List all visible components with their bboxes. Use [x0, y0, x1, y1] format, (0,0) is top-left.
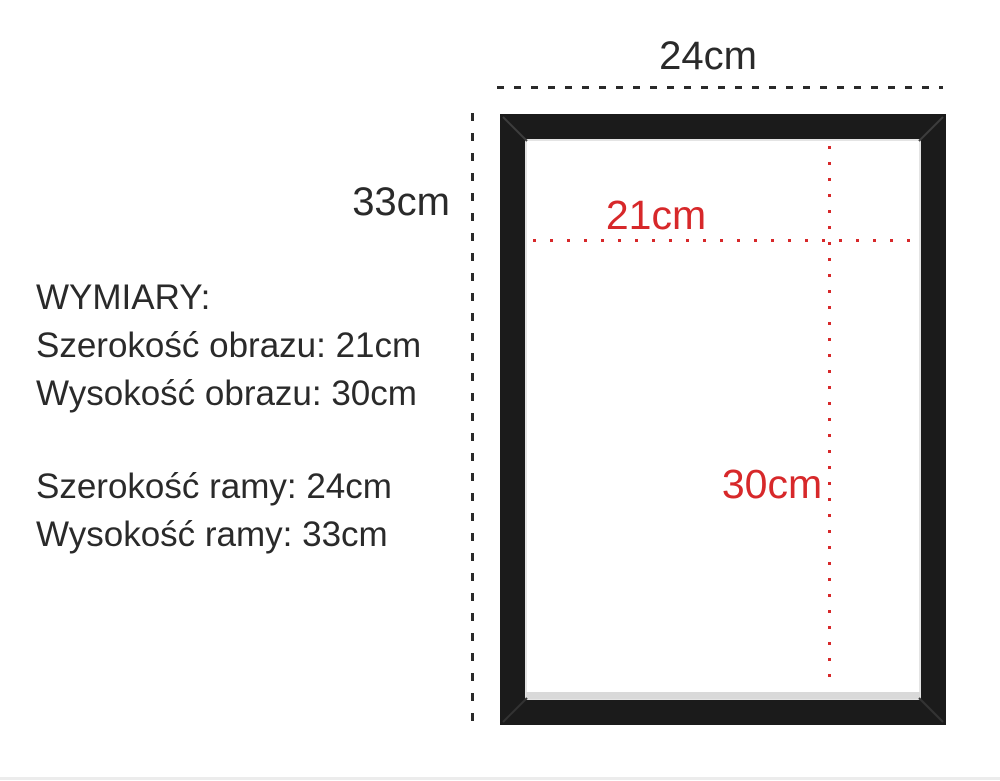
picture-area	[526, 140, 920, 699]
picture-height-label: 30cm	[719, 461, 825, 508]
picture-width-label: 21cm	[600, 192, 712, 239]
frame-dimensions-diagram: WYMIARY: Szerokość obrazu: 21cm Wysokość…	[0, 0, 1000, 781]
picture-frame	[500, 114, 946, 725]
specs-block: WYMIARY: Szerokość obrazu: 21cm Wysokość…	[36, 274, 421, 559]
spec-picture-height: Wysokość obrazu: 30cm	[36, 370, 421, 418]
picture-height-dotted-line	[828, 146, 831, 687]
frame-height-label: 33cm	[346, 180, 450, 225]
frame-height-extent-line	[471, 113, 474, 724]
picture-width-dotted-line	[533, 239, 913, 242]
spec-frame-height: Wysokość ramy: 33cm	[36, 511, 421, 559]
frame-width-extent-line	[497, 86, 943, 89]
spec-frame-width: Szerokość ramy: 24cm	[36, 463, 421, 511]
image-bottom-edge	[0, 777, 1000, 780]
spec-blank-line	[36, 418, 421, 463]
specs-title: WYMIARY:	[36, 274, 421, 322]
glass-lip	[526, 692, 920, 699]
frame-width-label: 24cm	[652, 34, 764, 79]
spec-picture-width: Szerokość obrazu: 21cm	[36, 322, 421, 370]
